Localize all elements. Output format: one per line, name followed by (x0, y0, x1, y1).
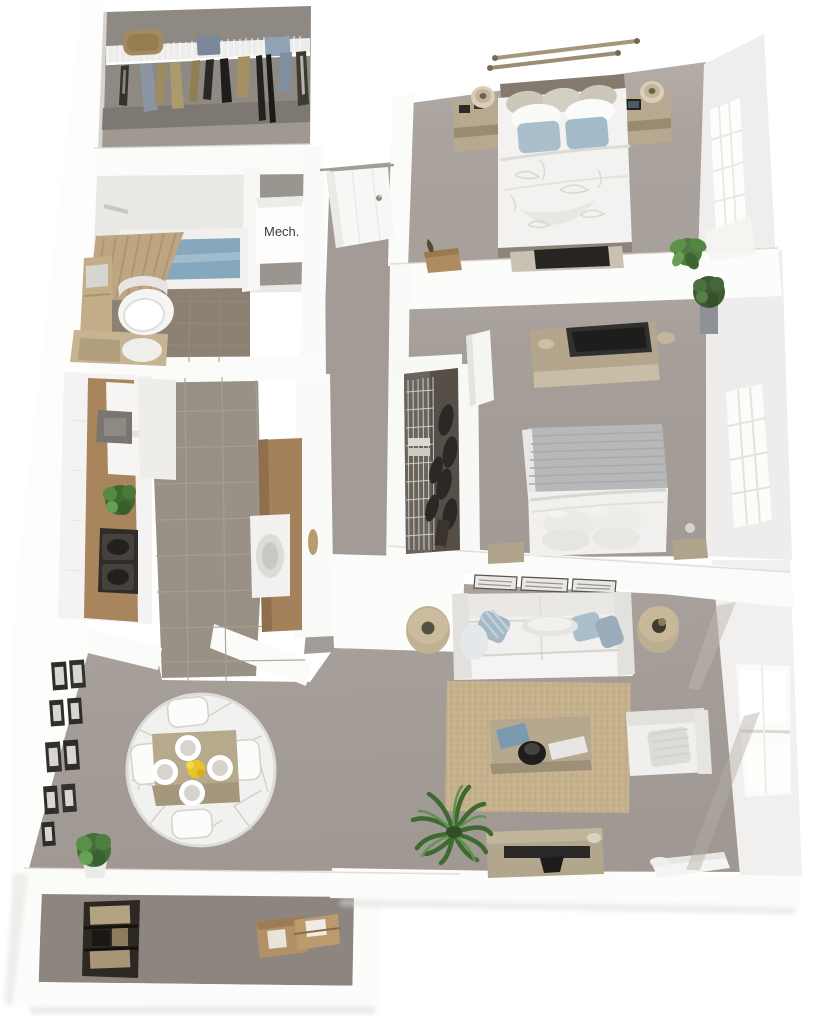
svg-text:Mech.: Mech. (264, 224, 299, 239)
